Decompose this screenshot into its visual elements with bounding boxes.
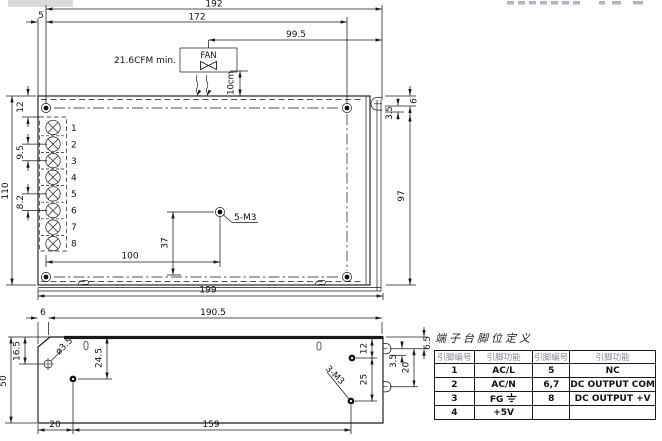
terminal-number: 8: [71, 240, 77, 250]
pin-number: 5: [533, 364, 570, 378]
dim-3-5-right: 3.5: [385, 106, 395, 120]
dim-37: 37: [161, 237, 171, 248]
pin-table-row: 1 AC/L 5 NC: [435, 364, 656, 378]
dim-12-side: 12: [360, 343, 370, 354]
dim-190-5: 190.5: [200, 308, 226, 318]
terminal-block: 1 2 3 4 5 6 7 8: [40, 117, 78, 251]
pin-table-title: 端子台脚位定义: [435, 330, 656, 346]
dim-110: 110: [1, 182, 11, 199]
pin-number: [533, 406, 570, 420]
pin-number: 6,7: [533, 378, 570, 392]
dim-3-5-side: 3.5: [389, 354, 399, 368]
pin-table-row: 4 +5V: [435, 406, 656, 420]
dim-6-right: 6: [410, 98, 420, 104]
fan-airflow-note: 21.6CFM min.: [114, 56, 176, 66]
dim-24-5: 24.5: [95, 348, 105, 368]
terminal-number: 4: [71, 174, 77, 184]
dim-12: 12: [16, 101, 26, 112]
hole-label-5m3: 5-M3: [234, 213, 256, 223]
dim-6-side: 6: [40, 308, 46, 318]
terminal-number: 7: [71, 223, 77, 233]
airflow-arrows-icon: [196, 75, 208, 96]
cropped-ui-artifact-top-left: [8, 0, 73, 7]
side-view-dimensions: 6 190.5 16.5 50 ø3.5 24.5 20 159: [0, 308, 433, 434]
dim-6-5: 6.5: [423, 336, 433, 350]
side-view-holes: [42, 355, 355, 405]
top-view-dimensions: 192 172 5 99.5 10cm 110 12: [1, 0, 420, 300]
pin-number: 1: [435, 364, 475, 378]
dim-25: 25: [360, 374, 370, 385]
pin-function: DC OUTPUT +V: [570, 392, 656, 406]
fan-symbol: FAN 21.6CFM min.: [114, 48, 237, 96]
terminal-number: 2: [71, 141, 77, 151]
mounting-holes: [41, 103, 351, 281]
dim-50: 50: [0, 375, 9, 387]
dim-20-bottom: 20: [49, 420, 61, 430]
cropped-text-artifact-top-right: [507, 1, 643, 5]
pin-number: 2: [435, 378, 475, 392]
header-pin-number-left: 引脚编号: [435, 351, 475, 364]
header-pin-number-right: 引脚编号: [533, 351, 570, 364]
hole-dia-label: ø3.5: [54, 336, 75, 357]
pin-function: [570, 406, 656, 420]
earth-ground-icon: [506, 393, 517, 403]
pin-function: AC/N: [474, 378, 532, 392]
dim-5: 5: [38, 11, 44, 21]
terminal-number: 1: [71, 124, 77, 134]
pin-table-header-row: 引脚编号 引脚功能 引脚编号 引脚功能: [435, 351, 656, 364]
pin-table: 引脚编号 引脚功能 引脚编号 引脚功能 1 AC/L 5 NC 2 AC/N 6…: [434, 350, 656, 420]
header-pin-function-right: 引脚功能: [570, 351, 656, 364]
header-pin-function-left: 引脚功能: [474, 351, 532, 364]
dim-159: 159: [202, 420, 219, 430]
pin-table-row: 3 FG 8 DC OUTPUT +V: [435, 392, 656, 406]
pin-function: NC: [570, 364, 656, 378]
mechanical-drawing-page: 1 2 3 4 5 6 7 8 FAN 21.6CFM min.: [0, 0, 662, 441]
dim-8-2: 8.2: [16, 195, 26, 209]
pin-function: FG: [474, 392, 532, 406]
pin-function-fg: FG: [490, 395, 504, 405]
pin-function: AC/L: [474, 364, 532, 378]
pin-table-row: 2 AC/N 6,7 DC OUTPUT COM: [435, 378, 656, 392]
pin-number: 8: [533, 392, 570, 406]
dim-97: 97: [397, 190, 407, 201]
dim-99-5: 99.5: [286, 30, 306, 40]
hole-5m3: [215, 207, 224, 216]
top-view: 1 2 3 4 5 6 7 8 FAN 21.6CFM min.: [1, 0, 420, 300]
dim-192: 192: [205, 0, 222, 10]
dim-172: 172: [188, 13, 205, 23]
dim-9-5: 9.5: [16, 145, 26, 159]
dim-10cm: 10cm: [227, 71, 237, 95]
dim-20-right: 20: [402, 362, 412, 374]
pin-function: +5V: [474, 406, 532, 420]
dim-199: 199: [199, 286, 216, 296]
side-view: 6 190.5 16.5 50 ø3.5 24.5 20 159: [0, 308, 433, 434]
terminal-numbers: 1 2 3 4 5 6 7 8: [71, 124, 77, 250]
pin-number: 3: [435, 392, 475, 406]
dim-16-5: 16.5: [13, 341, 23, 361]
fan-label: FAN: [200, 51, 216, 61]
terminal-number: 6: [71, 207, 77, 217]
terminal-number: 3: [71, 157, 77, 167]
fan-blade-icon: [201, 62, 217, 70]
pin-number: 4: [435, 406, 475, 420]
pin-definition-section: 端子台脚位定义 引脚编号 引脚功能 引脚编号 引脚功能 1 AC/L 5 NC …: [434, 330, 656, 420]
terminal-number: 5: [71, 190, 77, 200]
dim-100: 100: [121, 252, 138, 262]
pin-function: DC OUTPUT COM: [570, 378, 656, 392]
hole-label-3m3: 3-M3: [323, 364, 346, 387]
